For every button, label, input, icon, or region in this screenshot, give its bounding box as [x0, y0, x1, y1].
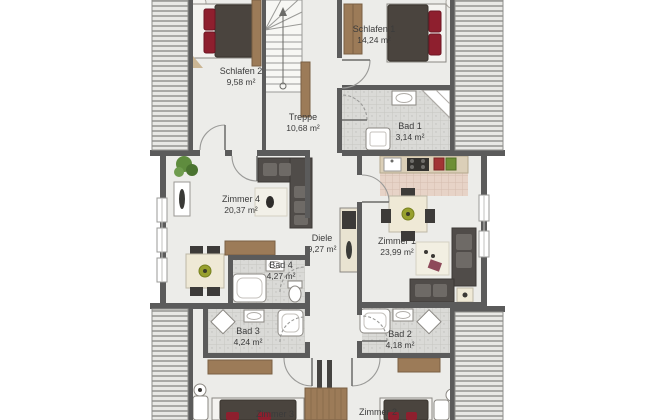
room-schlafen-1: Schlafen 1 14,24 m²: [344, 0, 458, 62]
bathtub: [233, 274, 266, 302]
double-bed: [189, 4, 253, 58]
chair: [425, 209, 435, 223]
room-label: Schlafen 1: [353, 24, 396, 34]
room-area: 10,68 m²: [286, 123, 320, 133]
washbasin: [392, 91, 416, 105]
washbasin: [244, 310, 264, 322]
double-bed: [387, 4, 446, 62]
room-label: Zimmer 3: [256, 409, 294, 419]
room-label: Zimmer 1: [378, 236, 416, 246]
side-table-plant: [174, 182, 190, 216]
pillow: [204, 32, 215, 53]
washbasin: [393, 309, 413, 321]
room-area: 4,27 m²: [267, 271, 296, 281]
chimney-post: [327, 360, 332, 388]
room-area: 20,37 m²: [224, 205, 258, 215]
kitchen-counter: [380, 156, 468, 173]
room-area: 4,18 m²: [386, 340, 415, 350]
wardrobe: [252, 0, 261, 66]
pillow: [406, 412, 417, 420]
chair: [207, 287, 220, 296]
shower-tray: [366, 128, 390, 150]
floor-lamp: [194, 384, 206, 396]
room-label: Zimmer 4: [222, 194, 260, 204]
sideboard: [225, 241, 275, 255]
chair: [381, 209, 391, 223]
side-table: [457, 288, 473, 302]
hatch-top-right: [455, 0, 503, 150]
chimney-post: [317, 360, 322, 388]
toilet: [288, 281, 302, 302]
laundry-basket: [193, 396, 208, 420]
bathtub: [360, 309, 390, 333]
pillow: [429, 11, 441, 32]
pillow: [204, 9, 215, 30]
room-label: Treppe: [289, 112, 317, 122]
floor-plan-canvas: Schlafen 2 9,58 m² Treppe 10,68 m² Schla…: [0, 0, 650, 420]
dining-table: [186, 246, 224, 296]
room-label: Bad 2: [388, 329, 412, 339]
room-label: Bad 1: [398, 121, 422, 131]
room-label: Bad 3: [236, 326, 260, 336]
room-area: 9,58 m²: [227, 77, 256, 87]
room-label: Zimmer 2: [359, 407, 397, 417]
room-label: Schlafen 2: [220, 66, 263, 76]
hall-cabinet: [340, 208, 358, 272]
hatch-top-left: [152, 0, 188, 150]
room-area: 14,24 m²: [357, 35, 391, 45]
chair: [190, 287, 203, 296]
sideboard: [398, 358, 440, 372]
pillow: [226, 412, 239, 420]
hatch-bottom-right: [455, 312, 503, 420]
rug: [416, 242, 449, 275]
staircase: [265, 0, 302, 92]
counter-item-green: [446, 158, 456, 170]
room-area: 3,14 m²: [396, 132, 425, 142]
hatch-bottom-left: [152, 309, 188, 420]
sideboard: [208, 360, 272, 374]
pillow: [429, 34, 441, 55]
laundry-basket: [434, 400, 449, 420]
landing-cabinet: [301, 62, 310, 117]
room-area: 23,99 m²: [380, 247, 414, 257]
room-area: 4,24 m²: [234, 337, 263, 347]
floor-plan: Schlafen 2 9,58 m² Treppe 10,68 m² Schla…: [0, 0, 650, 420]
counter-item-red: [434, 158, 444, 170]
room-label: Diele: [312, 233, 333, 243]
room-area: 9,27 m²: [308, 244, 337, 254]
room-label: Bad 4: [269, 260, 293, 270]
